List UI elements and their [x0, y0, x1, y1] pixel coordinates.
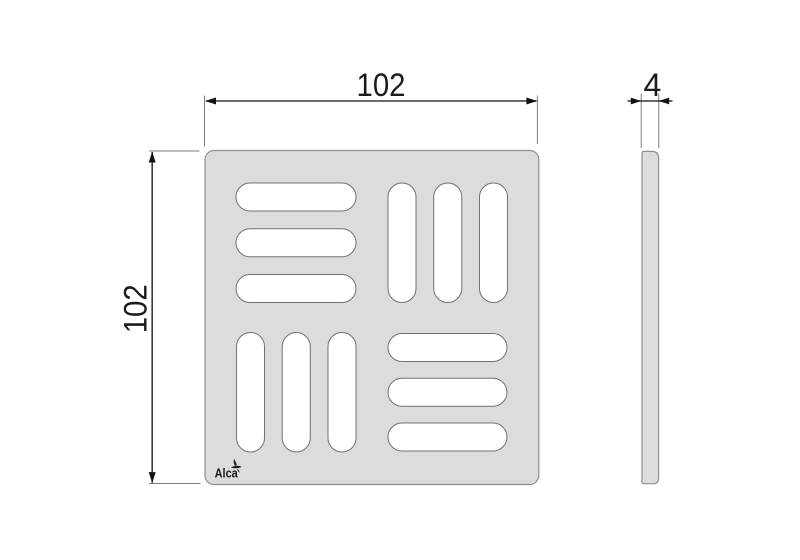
svg-text:Alca: Alca [215, 466, 239, 480]
svg-text:4: 4 [644, 67, 662, 103]
svg-text:102: 102 [357, 67, 406, 103]
svg-text:102: 102 [118, 284, 154, 333]
